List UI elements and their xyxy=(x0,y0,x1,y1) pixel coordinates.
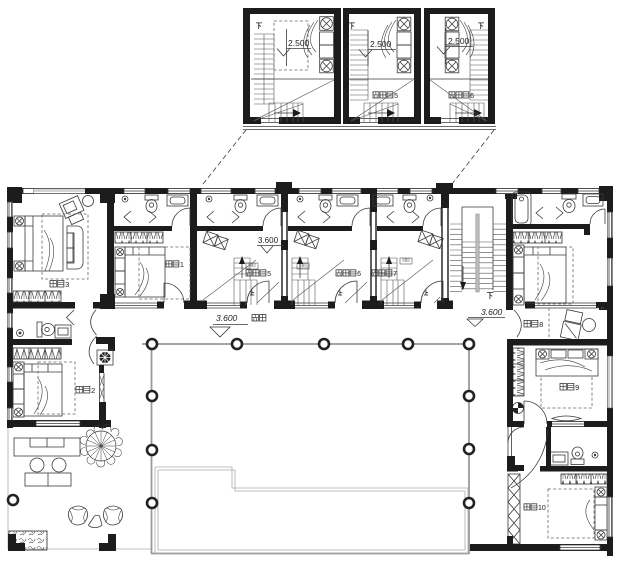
svg-text:6: 6 xyxy=(470,93,474,100)
svg-text:6: 6 xyxy=(357,271,361,278)
svg-text:3.600: 3.600 xyxy=(258,236,279,245)
svg-text:5: 5 xyxy=(394,93,398,100)
svg-text:3.600: 3.600 xyxy=(481,307,503,317)
svg-text:1: 1 xyxy=(180,262,184,269)
svg-text:10: 10 xyxy=(538,505,546,512)
svg-text:2: 2 xyxy=(91,386,95,395)
svg-text:8: 8 xyxy=(539,320,543,329)
svg-text:5: 5 xyxy=(267,271,271,278)
svg-text:7: 7 xyxy=(393,271,397,278)
svg-text:3.600: 3.600 xyxy=(216,313,238,323)
svg-text:3: 3 xyxy=(65,280,69,289)
svg-text:9: 9 xyxy=(575,383,579,392)
